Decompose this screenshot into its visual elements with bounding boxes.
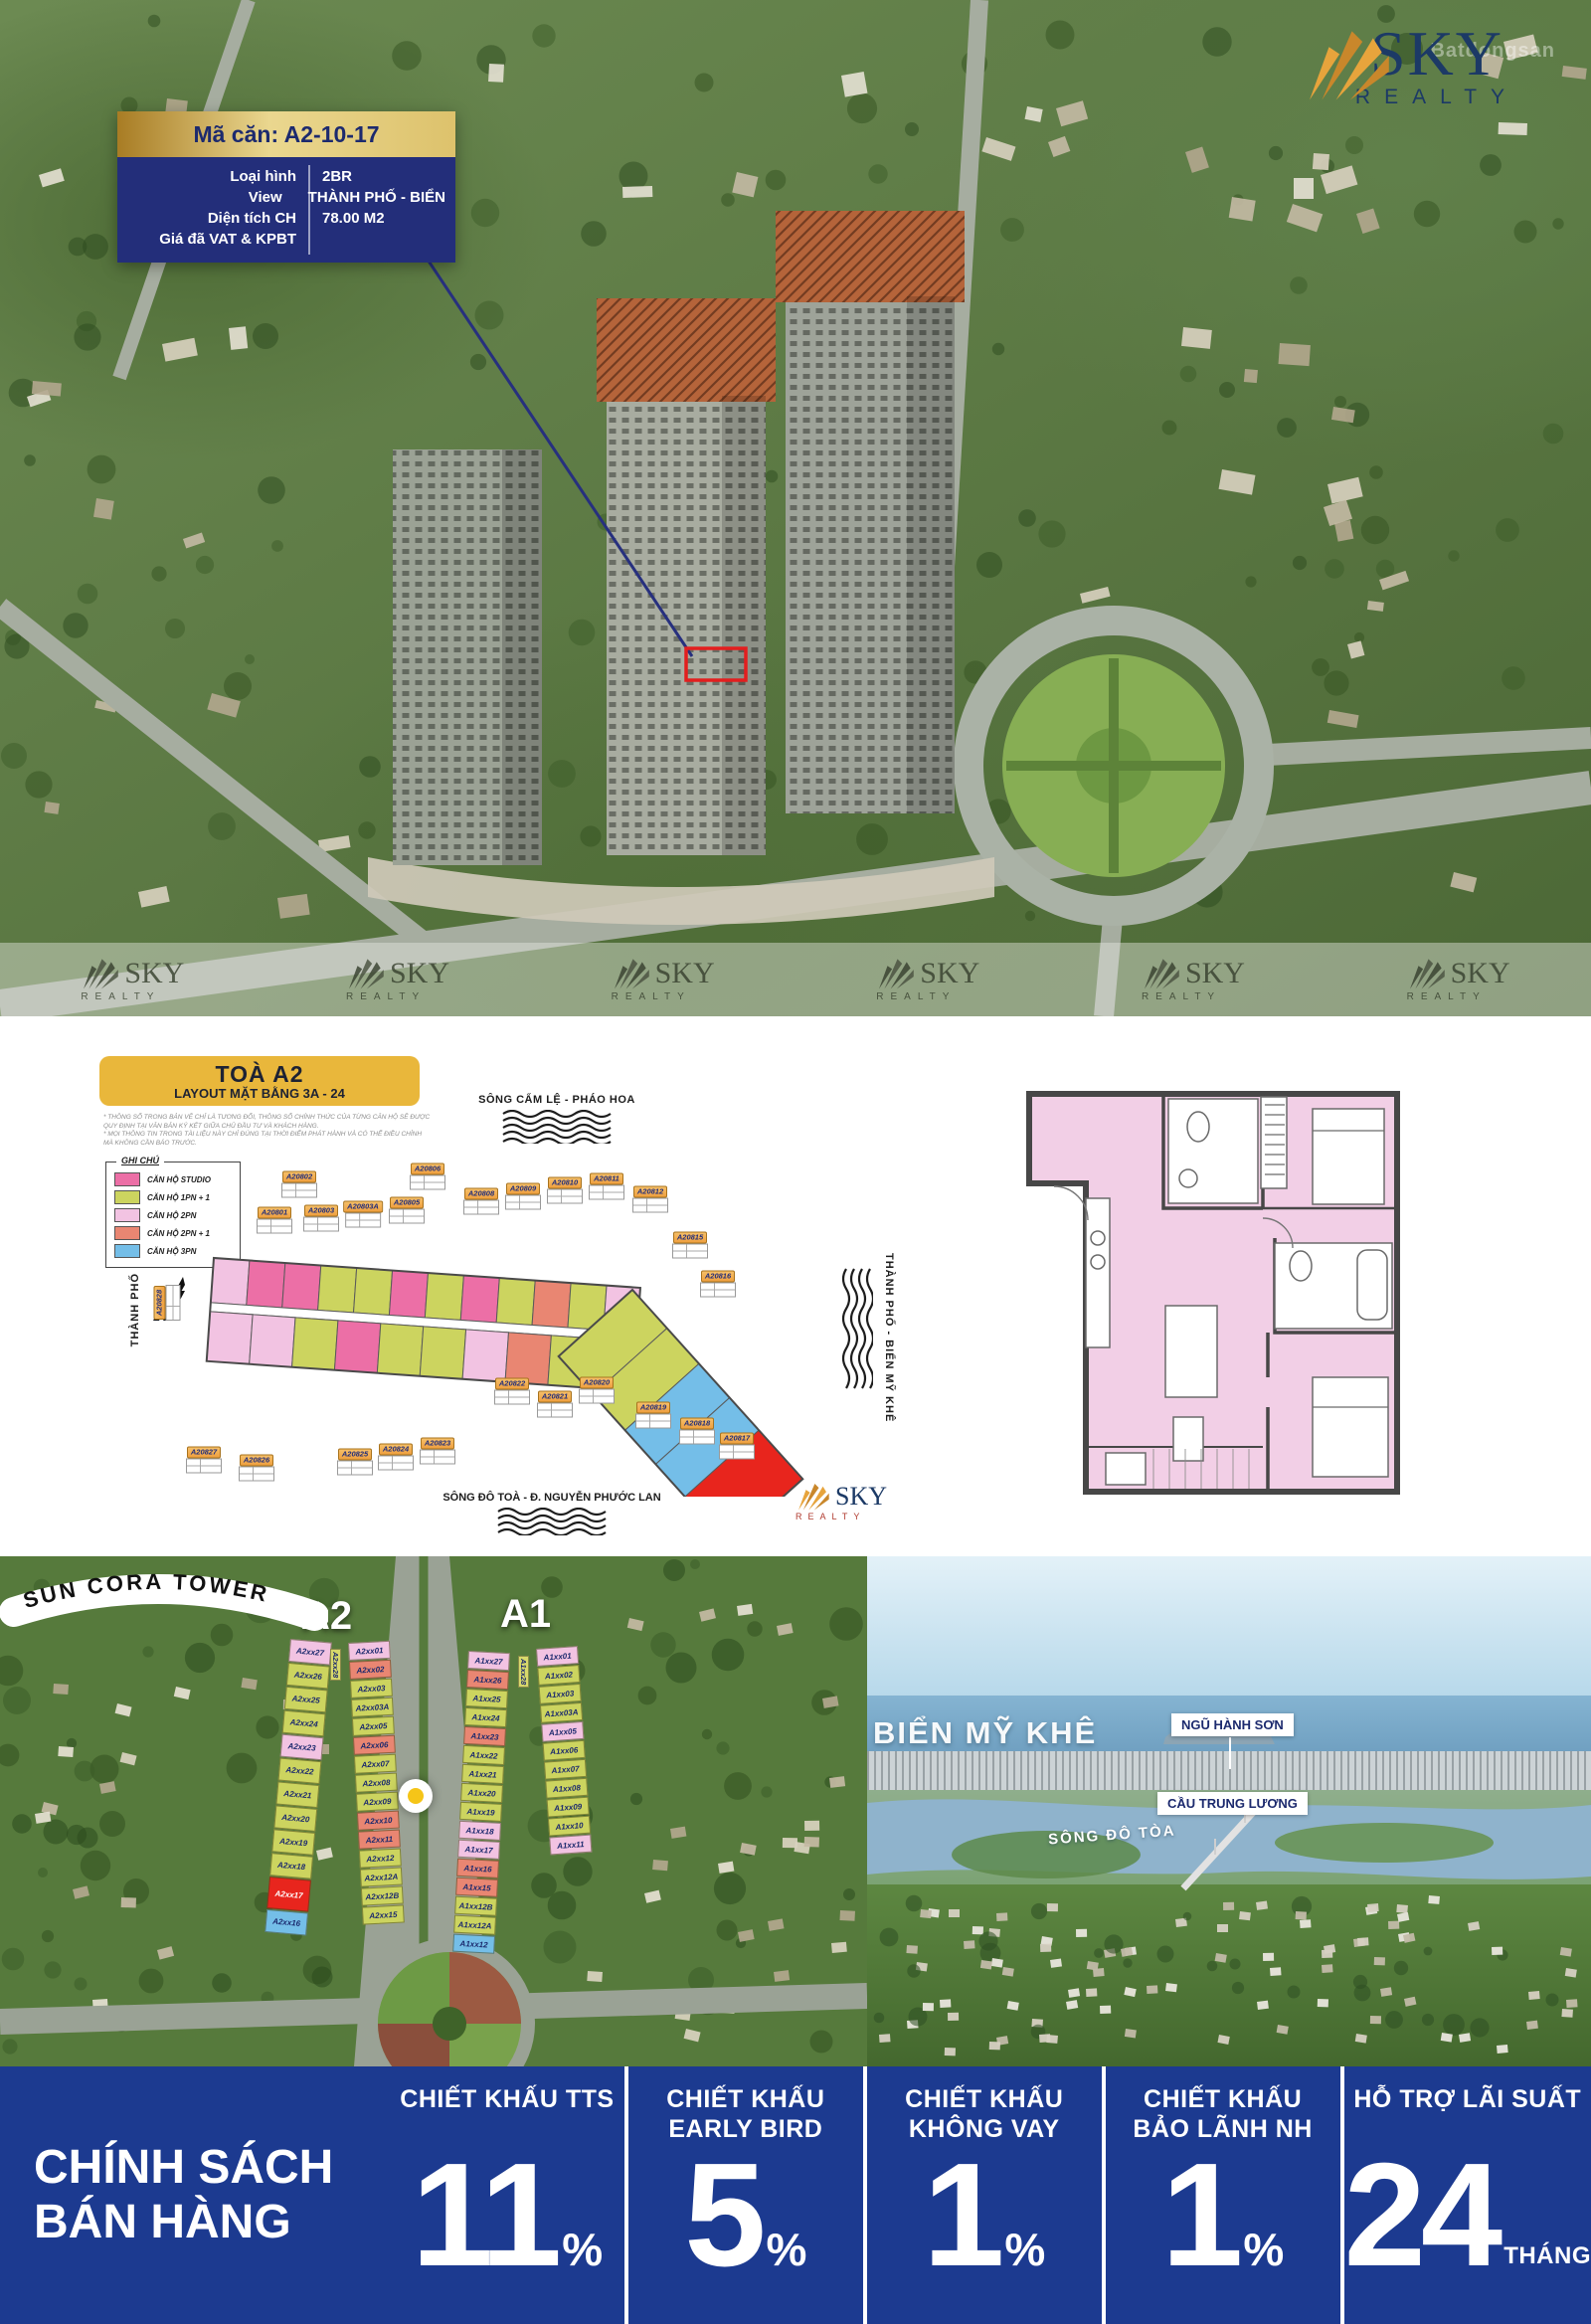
watermark-logo: SKY REALTY [346, 957, 449, 1002]
unit-info-value: THÀNH PHỐ - BIỂN [295, 187, 445, 208]
siteplan-unit-cell: A2xx18 [269, 1853, 313, 1879]
siteplan-unit-cell: A1xx03 [539, 1684, 582, 1704]
legend-item: CĂN HỘ STUDIO [114, 1172, 232, 1186]
unit-info-value: 78.00 M2 [309, 208, 385, 229]
brand-name: SKY [390, 957, 449, 990]
siteplan-unit-cell: A2xx24 [282, 1710, 326, 1737]
floorplate-strip [199, 1238, 855, 1497]
siteplan-unit-cell: A2xx21 [275, 1781, 319, 1808]
siteplan-unit-cell: A2xx02 [349, 1660, 392, 1680]
siteplan-unit-cell: A2xx12B [361, 1885, 404, 1905]
brand-logo: SKY REALTY [1303, 26, 1571, 109]
sun-rays-icon [1407, 957, 1447, 990]
disclaimer-text: * THÔNG SỐ TRONG BẢN VẼ CHỈ LÀ TƯƠNG ĐỐI… [103, 1114, 432, 1148]
sun-rays-icon [876, 957, 916, 990]
policy-number: 5 [684, 2146, 761, 2286]
brand-sub: REALTY [1142, 991, 1245, 1002]
siteplan-side-tag: A1xx28 [518, 1656, 529, 1688]
siteplan-unit-cell: A1xx23 [463, 1726, 506, 1746]
tower-name-ribbon: SUN CORA TOWER [0, 1556, 328, 1642]
siteplan-unit-cell: A2xx12 [359, 1849, 402, 1869]
unit-info-value: 2BR [309, 166, 352, 187]
watermark-band: SKY REALTY SKY REALTY SKY REALTY SKY REA… [0, 943, 1591, 1016]
plan-brand-logo: SKY REALTY [795, 1482, 887, 1521]
location-section: A2 A1 A2xx27A2xx26A2xx25A2xx24A2xx23A2xx… [0, 1556, 1591, 2066]
disclaimer-line: * MỌI THÔNG TIN TRONG TÀI LIỆU NÀY CHỈ Đ… [103, 1131, 432, 1148]
siteplan-unit-cell: A1xx01 [536, 1646, 579, 1667]
siteplan-unit-cell: A2xx27 [288, 1639, 332, 1666]
siteplan-unit-cell: A1xx08 [545, 1778, 588, 1799]
watermark-logo: SKY REALTY [612, 957, 715, 1002]
unit-info-body: Loại hình2BRViewTHÀNH PHỐ - BIỂNDiện tíc… [117, 157, 455, 263]
siteplan-unit-cell: A1xx26 [466, 1670, 509, 1690]
tower-right [776, 211, 965, 813]
siteplan-unit-cell: A2xx17 [266, 1877, 311, 1912]
legend-swatch [114, 1172, 140, 1186]
siteplan-unit-cell: A1xx12 [452, 1934, 495, 1954]
waves-icon [492, 1508, 612, 1535]
policy-column: CHIẾT KHẤUKHÔNG VAY1% [863, 2066, 1102, 2324]
siteplan-unit-cell: A1xx07 [544, 1759, 587, 1780]
bridge-label: CẦU TRUNG LƯƠNG [1157, 1792, 1308, 1815]
mountain-leader-line [1229, 1737, 1231, 1769]
siteplan-unit-cell: A1xx19 [459, 1802, 502, 1822]
unit-info-label: Giá đã VAT & KPBT [117, 229, 309, 250]
brand-name: SKY [835, 1482, 887, 1512]
floorplan-title-badge: TOÀ A2 LAYOUT MẶT BẰNG 3A - 24 [99, 1056, 420, 1106]
siteplan-unit-cell: A2xx07 [354, 1754, 397, 1774]
siteplan-unit-cell: A1xx06 [543, 1740, 586, 1761]
direction-label-north: SÔNG CẨM LỆ - PHÁO HOA [447, 1094, 666, 1144]
card-divider [308, 165, 310, 255]
policy-number: 24 [1344, 2146, 1499, 2286]
siteplan-unit-cell: A2xx03A [351, 1698, 394, 1717]
unit-code-title: Mã căn: A2-10-17 [117, 111, 455, 157]
siteplan-unit-cell: A1xx03A [540, 1702, 583, 1723]
siteplan-unit-cell: A1xx20 [460, 1783, 503, 1803]
brand-sub: REALTY [612, 991, 715, 1002]
unit-info-value [309, 229, 322, 250]
policy-suffix: % [562, 2223, 603, 2276]
policy-value: 11% [412, 2146, 603, 2286]
siteplan-unit-cell: A1xx25 [465, 1689, 508, 1708]
siteplan-unit-cell: A1xx12A [453, 1915, 496, 1935]
layout-subtitle: LAYOUT MẶT BẰNG 3A - 24 [174, 1086, 345, 1101]
brand-name: SKY [655, 957, 715, 990]
siteplan-unit-cell: A1xx09 [547, 1797, 590, 1818]
watermark-logo: SKY REALTY [81, 957, 184, 1002]
roundabout [969, 621, 1259, 911]
mountain-label: NGŨ HÀNH SƠN [1171, 1713, 1294, 1736]
sun-rays-icon [346, 957, 386, 990]
sales-policy-bar: CHÍNH SÁCH BÁN HÀNG CHIẾT KHẤU TTS11%CHI… [0, 2066, 1591, 2324]
watermark-logo: SKY REALTY [876, 957, 979, 1002]
policy-number: 1 [923, 2146, 999, 2286]
legend-label: CĂN HỘ 2PN + 1 [147, 1229, 210, 1238]
unit-info-row: Diện tích CH78.00 M2 [117, 208, 445, 229]
siteplan-unit-cell: A1xx22 [462, 1745, 505, 1765]
policy-title-line1: CHÍNH SÁCH [34, 2141, 390, 2196]
policy-value: 24THÁNG [1344, 2146, 1591, 2286]
brand-sub: REALTY [1407, 991, 1510, 1002]
tower-a1-label: A1 [500, 1592, 551, 1637]
legend-label: CĂN HỘ 3PN [147, 1247, 196, 1256]
coastal-photo: BIỂN MỸ KHÊ NGŨ HÀNH SƠN CẦU TRUNG LƯƠNG… [867, 1556, 1591, 2066]
direction-label-east: THÀNH PHỐ - BIỂN MỸ KHÊ [883, 1253, 895, 1422]
siteplan-unit-cell: A2xx19 [271, 1829, 315, 1856]
siteplan-unit-cell: A2xx10 [357, 1811, 400, 1831]
unit-info-label: Loại hình [117, 166, 309, 187]
siteplan-unit-cell: A2xx06 [353, 1735, 396, 1755]
policy-value: 5% [684, 2146, 806, 2286]
brand-name: SKY [1185, 957, 1245, 990]
siteplan-unit-cell: A1xx17 [457, 1840, 500, 1860]
policy-column: CHIẾT KHẤU TTS11% [390, 2066, 624, 2324]
siteplan-unit-cell: A2xx08 [355, 1773, 398, 1793]
unit-info-label: View [117, 187, 295, 208]
policy-suffix: % [1004, 2223, 1045, 2276]
siteplan-unit-cell: A2xx20 [273, 1805, 317, 1832]
policy-suffix: THÁNG [1503, 2242, 1591, 2270]
sun-rays-icon [612, 957, 651, 990]
siteplan-unit-cell: A1xx12B [454, 1896, 497, 1916]
siteplan-unit-cell: A2xx22 [278, 1758, 322, 1785]
siteplan-unit-cell: A2xx16 [265, 1909, 308, 1936]
policy-header-line: CHIẾT KHẤU [1144, 2084, 1302, 2114]
unit-info-row: Giá đã VAT & KPBT [117, 229, 445, 250]
tower-middle [597, 298, 776, 855]
policy-title: CHÍNH SÁCH BÁN HÀNG [0, 2066, 390, 2324]
siteplan-unit-cell: A2xx01 [348, 1641, 391, 1661]
siteplan-side-tag: A2xx28 [330, 1649, 341, 1681]
siteplan-unit-cell: A2xx15 [362, 1904, 405, 1924]
policy-column: CHIẾT KHẤUEARLY BIRD5% [624, 2066, 863, 2324]
siteplan-unit-cell: A1xx11 [549, 1835, 592, 1856]
watermark-logo: SKY REALTY [1407, 957, 1510, 1002]
siteplan-unit-cell: A1xx05 [541, 1721, 584, 1742]
sun-rays-icon [81, 957, 120, 990]
policy-value: 1% [923, 2146, 1045, 2286]
legend-swatch [114, 1244, 140, 1258]
sun-rays-icon [1142, 957, 1181, 990]
watermark-logo: SKY REALTY [1142, 957, 1245, 1002]
location-marker [399, 1779, 433, 1813]
unit-info-label: Diện tích CH [117, 208, 309, 229]
policy-number: 1 [1161, 2146, 1238, 2286]
siteplan-unit-cell: A2xx23 [280, 1734, 324, 1761]
policy-header-line: HỖ TRỢ LÃI SUẤT [1353, 2084, 1581, 2114]
sun-rays-icon [795, 1482, 831, 1512]
policy-suffix: % [1243, 2223, 1284, 2276]
siteplan-unit-cell: A2xx09 [356, 1792, 399, 1812]
tower-title: TOÀ A2 [215, 1062, 303, 1086]
aerial-render: Batdongsan SKY REALTY Mã căn: A2-10-17 L… [0, 0, 1591, 1016]
legend-swatch [114, 1190, 140, 1204]
brand-sub: REALTY [876, 991, 979, 1002]
siteplan-unit-cell: A1xx02 [537, 1665, 580, 1686]
sun-rays-icon [1303, 26, 1394, 103]
siteplan-unit-cell: A1xx21 [461, 1764, 504, 1784]
siteplan-unit-cell: A1xx18 [458, 1821, 501, 1841]
direction-label-south: SÔNG ĐÔ TOÀ - Đ. NGUYỄN PHƯỚC LAN [428, 1492, 676, 1535]
policy-header-line: CHIẾT KHẤU TTS [400, 2084, 614, 2114]
apartment-floorplan [1014, 1079, 1412, 1507]
policy-number: 11 [412, 2146, 557, 2286]
brand-name: SKY [1451, 957, 1510, 990]
legend-item: CĂN HỘ 2PN [114, 1208, 232, 1222]
legend-swatch [114, 1226, 140, 1240]
siteplan-unit-cell: A1xx16 [456, 1859, 499, 1878]
sea-label: BIỂN MỸ KHÊ [873, 1715, 1097, 1751]
direction-label-west: THÀNH PHỐ [129, 1273, 141, 1346]
disclaimer-line: * THÔNG SỐ TRONG BẢN VẼ CHỈ LÀ TƯƠNG ĐỐI… [103, 1114, 432, 1131]
siteplan-unit-cell: A2xx03 [350, 1679, 393, 1698]
siteplan-unit-cell: A2xx11 [358, 1830, 401, 1850]
flyer-page: Batdongsan SKY REALTY Mã căn: A2-10-17 L… [0, 0, 1591, 2324]
siteplan-unit-cell: A2xx12A [360, 1867, 403, 1886]
policy-header-line: CHIẾT KHẤU [905, 2084, 1063, 2114]
siteplan-unit-cell: A2xx25 [284, 1687, 328, 1713]
policy-column: CHIẾT KHẤUBẢO LÃNH NH1% [1102, 2066, 1340, 2324]
brand-name: SKY [124, 957, 184, 990]
tower-left [393, 449, 542, 865]
siteplan-aerial: A2 A1 A2xx27A2xx26A2xx25A2xx24A2xx23A2xx… [0, 1556, 867, 2066]
city-stripes-icon [151, 1273, 185, 1321]
siteplan-unit-cell: A1xx27 [467, 1651, 510, 1671]
legend-label: CĂN HỘ STUDIO [147, 1175, 211, 1184]
policy-suffix: % [767, 2223, 807, 2276]
siteplan-unit-cell: A1xx24 [464, 1707, 507, 1727]
policy-column: HỖ TRỢ LÃI SUẤT24THÁNG [1340, 2066, 1591, 2324]
legend-swatch [114, 1208, 140, 1222]
legend-item: CĂN HỘ 1PN + 1 [114, 1190, 232, 1204]
unit-info-card: Mã căn: A2-10-17 Loại hình2BRViewTHÀNH P… [117, 111, 455, 263]
legend-label: CĂN HỘ 2PN [147, 1211, 196, 1220]
siteplan-unit-cell: A1xx10 [548, 1816, 591, 1837]
unit-info-row: ViewTHÀNH PHỐ - BIỂN [117, 187, 445, 208]
brand-sub: REALTY [81, 991, 184, 1002]
legend-label: CĂN HỘ 1PN + 1 [147, 1193, 210, 1202]
siteplan-unit-cell: A2xx26 [286, 1663, 330, 1690]
policy-header-line: CHIẾT KHẤU [666, 2084, 824, 2114]
brand-sub: REALTY [346, 991, 449, 1002]
siteplan-unit-cell: A1xx15 [455, 1877, 498, 1897]
brand-sub: REALTY [795, 1512, 887, 1521]
waves-icon [497, 1110, 617, 1144]
policy-title-line2: BÁN HÀNG [34, 2196, 390, 2250]
siteplan-unit-cell: A2xx05 [352, 1716, 395, 1736]
policy-value: 1% [1161, 2146, 1284, 2286]
unit-info-row: Loại hình2BR [117, 166, 445, 187]
legend-title: GHI CHÚ [116, 1156, 164, 1165]
brand-name: SKY [920, 957, 979, 990]
